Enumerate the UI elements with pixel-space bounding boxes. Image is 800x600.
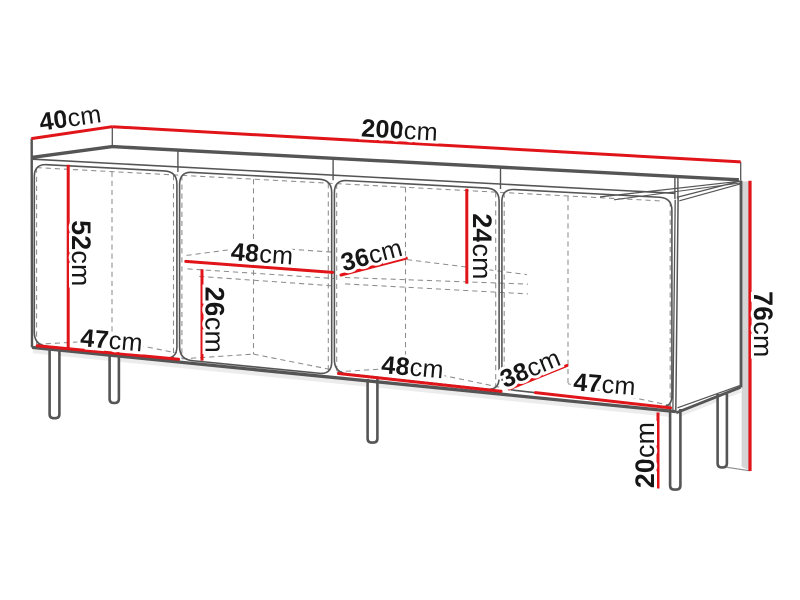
svg-text:47cm: 47cm [572,368,636,401]
svg-text:36cm: 36cm [338,234,406,277]
svg-text:76cm: 76cm [748,291,778,357]
svg-text:48cm: 48cm [380,351,445,384]
svg-text:26cm: 26cm [199,287,229,353]
svg-text:48cm: 48cm [230,238,294,271]
svg-text:38cm: 38cm [496,344,564,394]
svg-text:20cm: 20cm [630,422,660,488]
svg-text:52cm: 52cm [66,220,96,286]
svg-text:24cm: 24cm [467,213,497,279]
svg-text:200cm: 200cm [361,114,439,146]
svg-text:47cm: 47cm [79,324,144,357]
